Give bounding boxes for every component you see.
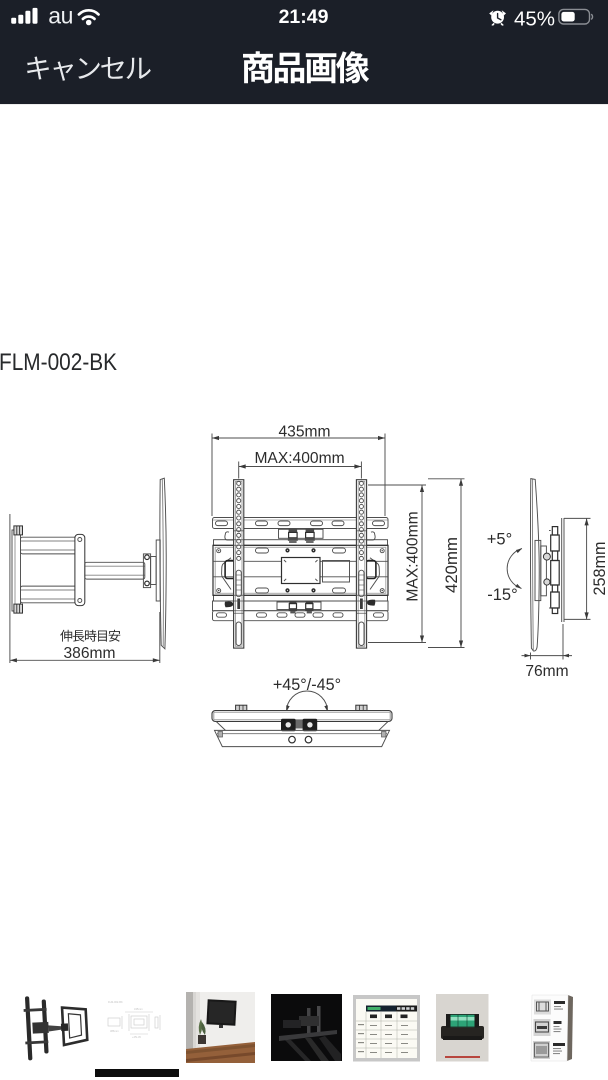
svg-text:386mm: 386mm <box>64 645 116 662</box>
svg-text:-15°: -15° <box>487 586 517 604</box>
svg-text:+45/-45: +45/-45 <box>132 1035 141 1039</box>
svg-text:21:49: 21:49 <box>279 6 329 28</box>
svg-text:386mm: 386mm <box>110 1029 119 1033</box>
svg-text:435mm: 435mm <box>279 424 331 441</box>
svg-text:258mm: 258mm <box>591 542 608 596</box>
svg-text:FLM-002-BK: FLM-002-BK <box>108 1000 123 1004</box>
svg-text:+5°: +5° <box>487 530 512 548</box>
svg-text:435mm: 435mm <box>134 1007 143 1011</box>
svg-text:45%: 45% <box>514 7 555 30</box>
svg-text:MAX:400mm: MAX:400mm <box>254 450 344 467</box>
svg-text:420mm: 420mm <box>442 537 461 593</box>
svg-text:au: au <box>48 3 73 29</box>
svg-text:MAX:400mm: MAX:400mm <box>405 511 422 601</box>
svg-text:76mm: 76mm <box>525 663 568 680</box>
